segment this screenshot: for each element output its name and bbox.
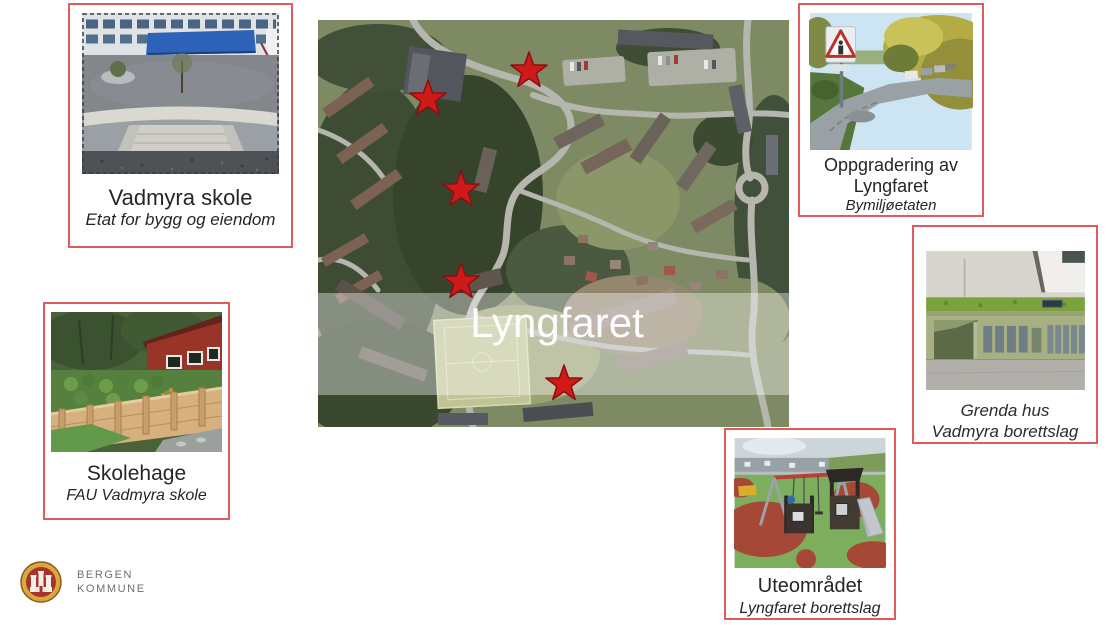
card-title: Vadmyra skole	[109, 185, 253, 210]
vadmyra-skole-photo	[82, 13, 279, 174]
map-title-label: Lyngfaret	[470, 299, 644, 346]
caption-line2: Vadmyra borettslag	[932, 421, 1079, 442]
map-star-4	[441, 262, 481, 302]
map-star-2	[408, 79, 448, 119]
playground-photo	[734, 438, 886, 568]
logo-text-line2: KOMMUNE	[77, 582, 146, 596]
map-star-1	[509, 51, 549, 91]
card-subtitle: Etat for bygg og eiendom	[86, 210, 276, 230]
map-star-5	[544, 364, 584, 404]
card-skolehage: Skolehage FAU Vadmyra skole	[43, 302, 230, 520]
bergen-kommune-seal-icon	[20, 561, 62, 603]
card-oppgradering-lyngfaret: Oppgradering av Lyngfaret Bymiljøetaten	[798, 3, 984, 217]
card-title: Oppgradering av Lyngfaret	[800, 155, 982, 197]
grenda-hus-rendering	[925, 251, 1086, 390]
skolehage-photo	[51, 312, 222, 452]
slide: Lyngfaret	[0, 0, 1109, 625]
card-subtitle: FAU Vadmyra skole	[66, 486, 206, 506]
map-star-3	[441, 170, 481, 210]
card-caption: Grenda hus Vadmyra borettslag	[932, 400, 1079, 442]
logo-text-line1: BERGEN	[77, 568, 146, 582]
aerial-map: Lyngfaret	[318, 20, 789, 427]
bergen-kommune-logo: BERGEN KOMMUNE	[20, 561, 146, 603]
card-grenda-hus: Grenda hus Vadmyra borettslag	[912, 225, 1098, 444]
caption-line1: Grenda hus	[932, 400, 1079, 421]
card-vadmyra-skole: Vadmyra skole Etat for bygg og eiendom	[68, 3, 293, 248]
card-subtitle: Lyngfaret borettslag	[739, 599, 880, 618]
card-uteomradet: Uteområdet Lyngfaret borettslag	[724, 428, 896, 620]
card-subtitle: Bymiljøetaten	[846, 197, 937, 215]
card-title: Skolehage	[87, 461, 186, 486]
card-title: Uteområdet	[758, 574, 863, 599]
lyngfaret-road-photo	[809, 13, 973, 150]
